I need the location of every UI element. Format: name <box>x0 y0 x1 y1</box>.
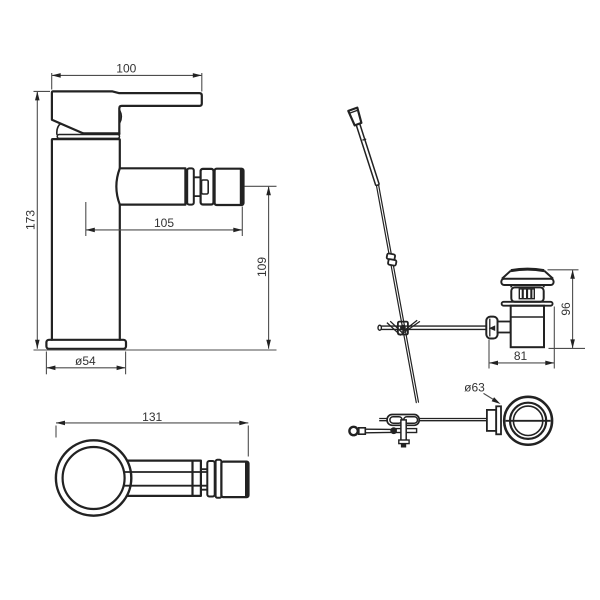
svg-text:173: 173 <box>24 210 38 230</box>
svg-text:131: 131 <box>142 410 162 424</box>
svg-text:ø63: ø63 <box>464 381 485 395</box>
svg-text:96: 96 <box>559 302 573 316</box>
svg-text:105: 105 <box>154 216 174 230</box>
svg-text:109: 109 <box>255 257 269 277</box>
svg-text:100: 100 <box>116 62 136 76</box>
svg-text:81: 81 <box>514 349 528 363</box>
svg-text:ø54: ø54 <box>75 354 96 368</box>
